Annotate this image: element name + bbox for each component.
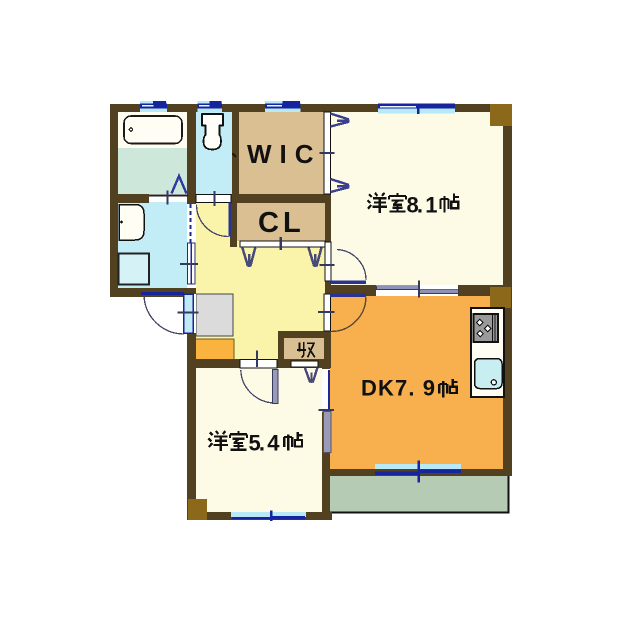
svg-text:WIC: WIC [247,139,322,169]
svg-text:CL: CL [258,207,305,239]
svg-text:8. 1: 8. 1 [407,193,438,218]
svg-text:5. 4: 5. 4 [249,431,281,456]
svg-text:DK7. 9: DK7. 9 [361,376,435,401]
